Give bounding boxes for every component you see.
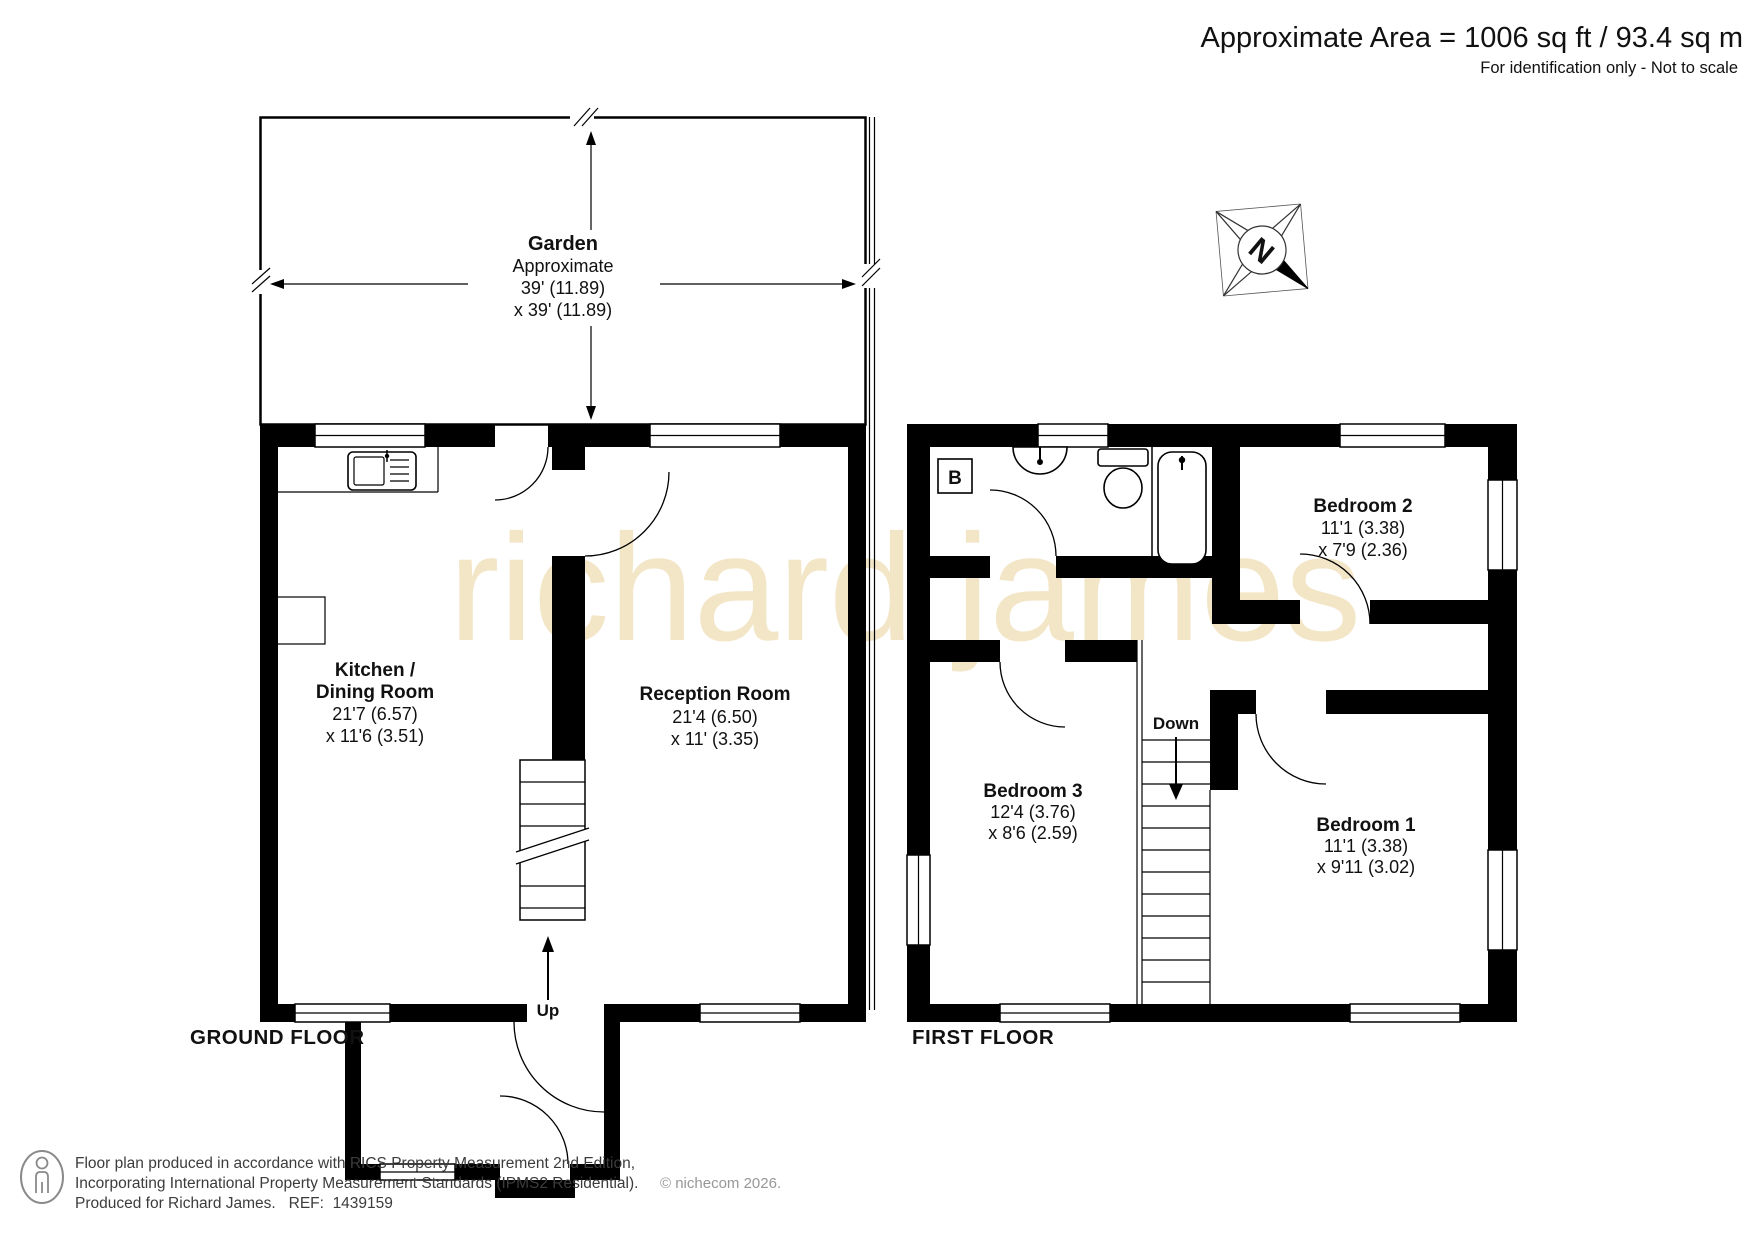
- footer: Floor plan produced in accordance with R…: [21, 1151, 781, 1212]
- footer-line-2: Incorporating International Property Mea…: [75, 1175, 638, 1192]
- kitchen-rear-window-icon: [295, 1004, 390, 1022]
- reception-label-block: Reception Room 21'4 (6.50) x 11' (3.35): [640, 684, 791, 749]
- kitchen-label-2: Dining Room: [316, 682, 434, 703]
- fence-break-left-icon: [251, 268, 270, 294]
- reception-window-icon: [650, 424, 780, 447]
- bedroom3-side-window-icon: [907, 855, 930, 945]
- kitchen-sink-icon: [348, 450, 416, 490]
- up-label: Up: [537, 1001, 560, 1020]
- worktop-unit: [277, 597, 325, 644]
- footer-line-1: Floor plan produced in accordance with R…: [75, 1155, 635, 1172]
- kitchen-window-icon: [315, 424, 425, 447]
- kitchen-label-block: Kitchen / Dining Room 21'7 (6.57) x 11'6…: [316, 660, 434, 746]
- front-door-arc: [514, 1022, 604, 1112]
- bedroom1-door-arc: [1256, 714, 1326, 784]
- garden-dim-1: 39' (11.89): [521, 278, 605, 298]
- footer-line-3: Produced for Richard James. REF: 1439159: [75, 1195, 393, 1212]
- reception-dim-1: 21'4 (6.50): [672, 707, 758, 727]
- garden-label: Garden: [528, 233, 598, 255]
- toilet-icon: [1098, 449, 1148, 508]
- staircase-up: Up: [516, 760, 589, 1020]
- reception-rear-window-icon: [700, 1004, 800, 1022]
- bedroom1-dim-1: 11'1 (3.38): [1324, 836, 1408, 856]
- bedroom3-dim-2: x 8'6 (2.59): [988, 823, 1077, 843]
- first-floor-label: FIRST FLOOR: [912, 1026, 1054, 1049]
- compass-rose: N: [1177, 165, 1346, 334]
- bathroom-window-icon: [1038, 424, 1108, 447]
- bedroom2-dim-1: 11'1 (3.38): [1321, 518, 1405, 538]
- bathtub-icon: [1158, 452, 1206, 564]
- bedroom1-label-block: Bedroom 1 11'1 (3.38) x 9'11 (3.02): [1316, 815, 1416, 877]
- approximate-area-text: Approximate Area = 1006 sq ft / 93.4 sq …: [1201, 22, 1743, 54]
- bedroom1-side-window-icon: [1488, 850, 1517, 950]
- bedroom2-side-window-icon: [1488, 480, 1517, 570]
- garden-note: Approximate: [512, 256, 613, 276]
- bedroom3-label: Bedroom 3: [983, 781, 1082, 802]
- up-arrow-icon: [542, 936, 554, 952]
- reception-dim-2: x 11' (3.35): [671, 729, 759, 749]
- bedroom2-window-icon: [1340, 424, 1445, 447]
- floorplan-page: richard james: [0, 0, 1755, 1241]
- fence-break-top-icon: [570, 108, 598, 126]
- boiler-label: B: [948, 468, 962, 489]
- down-arrow-icon: [1169, 784, 1183, 800]
- bedroom1-rear-window-icon: [1350, 1004, 1460, 1022]
- bedroom1-dim-2: x 9'11 (3.02): [1317, 857, 1415, 877]
- bedroom1-label: Bedroom 1: [1316, 815, 1416, 836]
- staircase-down: Down: [1137, 640, 1210, 1006]
- page-header: Approximate Area = 1006 sq ft / 93.4 sq …: [1201, 22, 1743, 77]
- kitchen-dim-1: 21'7 (6.57): [332, 704, 418, 724]
- porch-door-arc: [500, 1096, 568, 1164]
- garden-dim-2: x 39' (11.89): [514, 300, 612, 320]
- sink-icon: [1013, 447, 1067, 474]
- bedroom2-label-block: Bedroom 2 11'1 (3.38) x 7'9 (2.36): [1313, 496, 1412, 560]
- ground-floor-label: GROUND FLOOR: [190, 1026, 365, 1049]
- down-label: Down: [1153, 714, 1199, 733]
- bedroom3-dim-1: 12'4 (3.76): [990, 802, 1076, 822]
- reception-label: Reception Room: [640, 684, 791, 705]
- boiler-box: B: [938, 459, 972, 493]
- kitchen-dim-2: x 11'6 (3.51): [326, 726, 424, 746]
- footer-copyright: © nichecom 2026.: [660, 1175, 781, 1192]
- bedroom3-rear-window-icon: [1000, 1004, 1110, 1022]
- kitchen-fixtures: [277, 447, 438, 644]
- disclaimer-text: For identification only - Not to scale: [1480, 59, 1738, 77]
- kitchen-label-1: Kitchen /: [335, 660, 416, 681]
- garden-door-arc: [495, 447, 548, 500]
- person-icon: [21, 1151, 63, 1203]
- bedroom2-label: Bedroom 2: [1313, 496, 1412, 517]
- bedroom2-dim-2: x 7'9 (2.36): [1318, 540, 1407, 560]
- bedroom3-label-block: Bedroom 3 12'4 (3.76) x 8'6 (2.59): [983, 781, 1082, 843]
